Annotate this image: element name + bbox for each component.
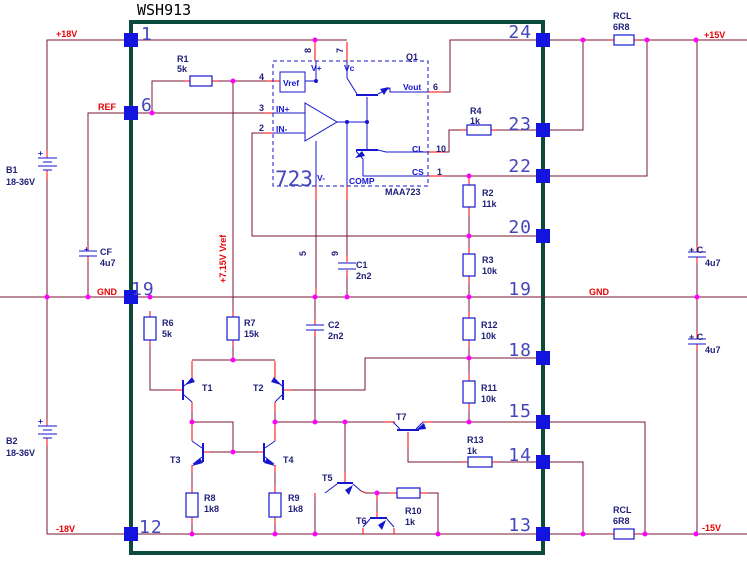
label-rcl-bottom: RCL <box>613 505 632 515</box>
label-c-bottom: + C <box>689 332 704 342</box>
value-r13: 1k <box>467 446 478 456</box>
battery-B1 <box>38 158 57 170</box>
value-r6: 5k <box>162 329 173 339</box>
transistor-T1 <box>183 377 195 402</box>
label-minus15: -15V <box>702 523 721 533</box>
label-c1: C1 <box>356 260 368 270</box>
resistor-RCL-top <box>614 35 634 45</box>
label-r7: R7 <box>244 318 256 328</box>
label-t4: T4 <box>283 455 294 465</box>
wire-vref-rail <box>233 81 266 311</box>
ic-pin-7: 7 <box>335 48 345 53</box>
pad-pin-6 <box>124 106 138 120</box>
value-rcl-top: 6R8 <box>613 22 630 32</box>
t2-arrow-icon <box>271 377 281 385</box>
label-r6: R6 <box>162 318 174 328</box>
label-t2: T2 <box>253 383 264 393</box>
label-c-top: + C <box>689 245 704 255</box>
transistor-T7 <box>393 422 426 430</box>
label-r11: R11 <box>481 383 497 393</box>
wire-t1t2-collectors <box>192 412 275 422</box>
label-t1: T1 <box>202 383 213 393</box>
label-b1: B1 <box>6 165 18 175</box>
opamp-triangle <box>305 103 337 141</box>
value-cf: 4u7 <box>100 258 116 268</box>
ic-pin-4: 4 <box>259 72 264 82</box>
port-comp: COMP <box>349 176 375 186</box>
wire-pin18-t2base <box>292 358 536 390</box>
resistor-R9 <box>269 493 281 517</box>
label-cf: CF <box>100 247 112 257</box>
value-rcl-bottom: 6R8 <box>613 516 630 526</box>
wire-pin15-out <box>550 422 645 532</box>
net-labels: +18V REF GND -18V GND +15V -15V +7.15V V… <box>56 29 725 534</box>
t6-arrow-icon <box>378 520 386 530</box>
label-r13: R13 <box>467 435 484 445</box>
pin-number-12: 12 <box>139 517 163 538</box>
t4-arrow-icon <box>264 458 275 466</box>
label-q1: Q1 <box>406 52 418 62</box>
label-r4: R4 <box>470 106 482 116</box>
ic-part-number: MAA723 <box>385 187 421 197</box>
value-c-top: 4u7 <box>705 258 721 268</box>
port-vc: Vc <box>344 63 355 73</box>
label-t3: T3 <box>170 455 181 465</box>
pin-number-1: 1 <box>141 24 153 45</box>
value-r1: 5k <box>177 64 188 74</box>
value-r7: 15k <box>244 329 260 339</box>
label-r9: R9 <box>288 493 300 503</box>
pad-pin-13 <box>536 527 550 541</box>
wire-mirror-left <box>192 422 233 452</box>
port-vref: Vref <box>283 78 299 88</box>
pin-number-15: 15 <box>508 401 532 422</box>
pad-pin-1 <box>124 33 138 47</box>
t1-arrow-icon <box>185 377 195 385</box>
value-r9: 1k8 <box>288 504 303 514</box>
pad-pin-12 <box>124 527 138 541</box>
value-c2: 2n2 <box>328 331 344 341</box>
label-r12: R12 <box>481 320 498 330</box>
resistor-RCL-bottom <box>614 529 634 539</box>
resistor-R10 <box>397 488 420 498</box>
plus-cf: + <box>84 244 89 254</box>
wire-ref-to-cf <box>88 113 131 297</box>
label-rcl-top: RCL <box>613 11 632 21</box>
pin-number-6: 6 <box>141 95 153 116</box>
q1-arrow-icon <box>380 87 389 95</box>
transistor-T5 <box>325 483 361 495</box>
resistors <box>144 35 634 539</box>
pad-pin-18 <box>536 351 550 365</box>
label-ref: REF <box>98 102 117 112</box>
pad-pin-23 <box>536 123 550 137</box>
battery-B2 <box>38 426 57 438</box>
label-t5: T5 <box>322 473 333 483</box>
ic-big-label: 723 <box>275 167 313 191</box>
label-plus15: +15V <box>704 30 725 40</box>
pin-number-23: 23 <box>508 114 532 135</box>
value-r3: 10k <box>482 266 498 276</box>
pin-number-18: 18 <box>508 340 532 361</box>
module-title: WSH913 <box>137 1 191 19</box>
transistor-T6 <box>363 518 394 530</box>
pad-pin-22 <box>536 169 550 183</box>
label-r2: R2 <box>482 188 494 198</box>
label-r3: R3 <box>482 255 494 265</box>
value-b1: 18-36V <box>6 177 35 187</box>
resistor-R12 <box>463 318 475 340</box>
pin-number-13: 13 <box>508 515 532 536</box>
ic-pin-9: 9 <box>330 251 340 256</box>
label-t6: T6 <box>356 516 367 526</box>
pin-number-14: 14 <box>508 445 532 466</box>
pad-pin-24 <box>536 33 550 47</box>
label-r8: R8 <box>204 493 216 503</box>
t3-arrow-icon <box>192 458 203 466</box>
wire-r10 <box>365 493 438 534</box>
label-t7: T7 <box>396 412 407 422</box>
wire-vout-to-pin24 <box>443 40 536 92</box>
wire-left-supply-column <box>47 40 131 534</box>
port-vplus: V+ <box>311 63 322 73</box>
pad-pin-20 <box>536 229 550 243</box>
transistors <box>183 377 426 530</box>
value-r2: 11k <box>482 199 498 209</box>
pad-pin-15 <box>536 415 550 429</box>
value-r4: 1k <box>470 116 481 126</box>
label-r1: R1 <box>177 54 189 64</box>
port-cs: CS <box>412 167 424 177</box>
resistor-R11 <box>463 381 475 403</box>
resistor-R13 <box>468 457 492 467</box>
label-b2: B2 <box>6 436 18 446</box>
t5-arrow-icon <box>345 485 353 495</box>
pin-number-22: 22 <box>508 156 532 177</box>
pin-number-24: 24 <box>508 22 532 43</box>
schematic-canvas: WSH913 1 6 19 12 24 23 22 20 19 18 15 14… <box>0 0 747 567</box>
value-r11: 10k <box>481 394 497 404</box>
ic-pin-10: 10 <box>436 144 446 154</box>
resistor-R8 <box>186 493 198 517</box>
value-c-bottom: 4u7 <box>705 345 721 355</box>
transistor-T2 <box>271 377 283 402</box>
ic-pin-3: 3 <box>259 103 264 113</box>
hybrid-module-border <box>131 22 543 553</box>
schematic-page: WSH913 1 6 19 12 24 23 22 20 19 18 15 14… <box>0 0 747 567</box>
resistor-R2 <box>463 185 475 207</box>
ic-pin-8: 8 <box>303 48 313 53</box>
ic-pin-6: 6 <box>433 82 438 92</box>
port-vminus: V- <box>317 173 325 183</box>
label-minus18: -18V <box>56 524 75 534</box>
value-b2: 18-36V <box>6 448 35 458</box>
transistor-T3 <box>192 441 203 466</box>
port-inplus: IN+ <box>276 104 290 114</box>
port-vout: Vout <box>403 82 421 92</box>
value-r10: 1k <box>405 517 416 527</box>
ic-pin-1: 1 <box>437 167 442 177</box>
label-r10: R10 <box>405 506 422 516</box>
label-gnd-right: GND <box>589 287 610 297</box>
pin-number-20: 20 <box>508 217 532 238</box>
resistor-R1 <box>190 76 212 86</box>
value-r12: 10k <box>481 331 497 341</box>
value-r8: 1k8 <box>204 504 219 514</box>
ic-pin-2: 2 <box>259 123 264 133</box>
pad-pin-14 <box>536 455 550 469</box>
label-plus18: +18V <box>56 29 77 39</box>
wire-r6-t1base <box>150 346 175 390</box>
port-inminus: IN- <box>276 124 288 134</box>
transistor-T4 <box>264 441 275 466</box>
resistor-R4 <box>467 125 491 135</box>
resistor-R6 <box>144 317 156 340</box>
plus-b2: + <box>38 416 43 426</box>
component-labels: R1 5k R4 1k R2 11k R3 10k R12 10k R11 10… <box>6 11 721 527</box>
label-gnd-left: GND <box>97 287 118 297</box>
pin-number-19-right: 19 <box>508 279 532 300</box>
pin-number-19-left: 19 <box>131 279 155 300</box>
port-cl: CL <box>412 144 423 154</box>
capacitor-C1 <box>338 263 356 269</box>
label-vref-rail: +7.15V Vref <box>218 234 228 283</box>
resistor-R3 <box>463 254 475 276</box>
resistor-R7 <box>227 317 239 340</box>
plus-b1: + <box>38 148 43 158</box>
ic-labels: Vref V+ Vc IN+ IN- Vout CL CS V- COMP 72… <box>259 48 446 256</box>
ic-pin-5: 5 <box>298 251 308 256</box>
label-c2: C2 <box>328 320 340 330</box>
value-c1: 2n2 <box>356 271 372 281</box>
wire-t7-r13 <box>408 448 462 462</box>
capacitor-C2 <box>306 325 324 330</box>
